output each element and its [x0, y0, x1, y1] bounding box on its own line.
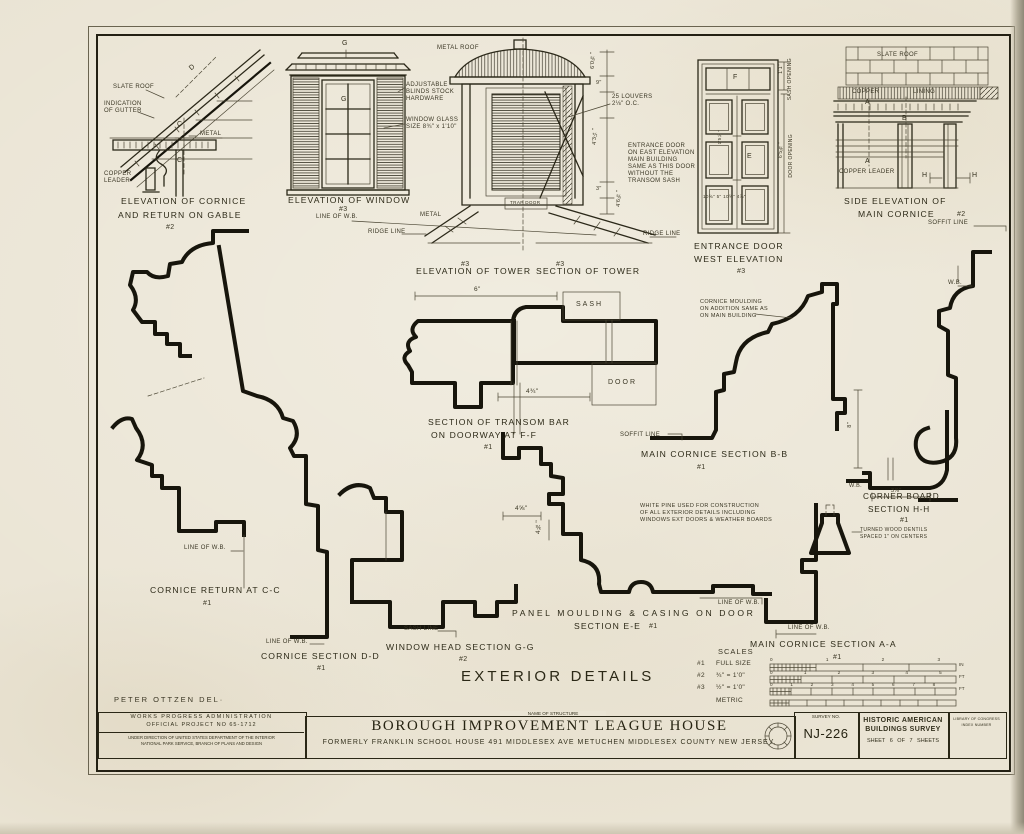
torn-right-edge: [1010, 0, 1024, 834]
bottom-edge-shadow: [0, 822, 1024, 834]
inner-border: [96, 34, 1011, 772]
habs-drawing-sheet: SLATE ROOF INDICATION OF GUTTER METAL CO…: [0, 0, 1024, 834]
